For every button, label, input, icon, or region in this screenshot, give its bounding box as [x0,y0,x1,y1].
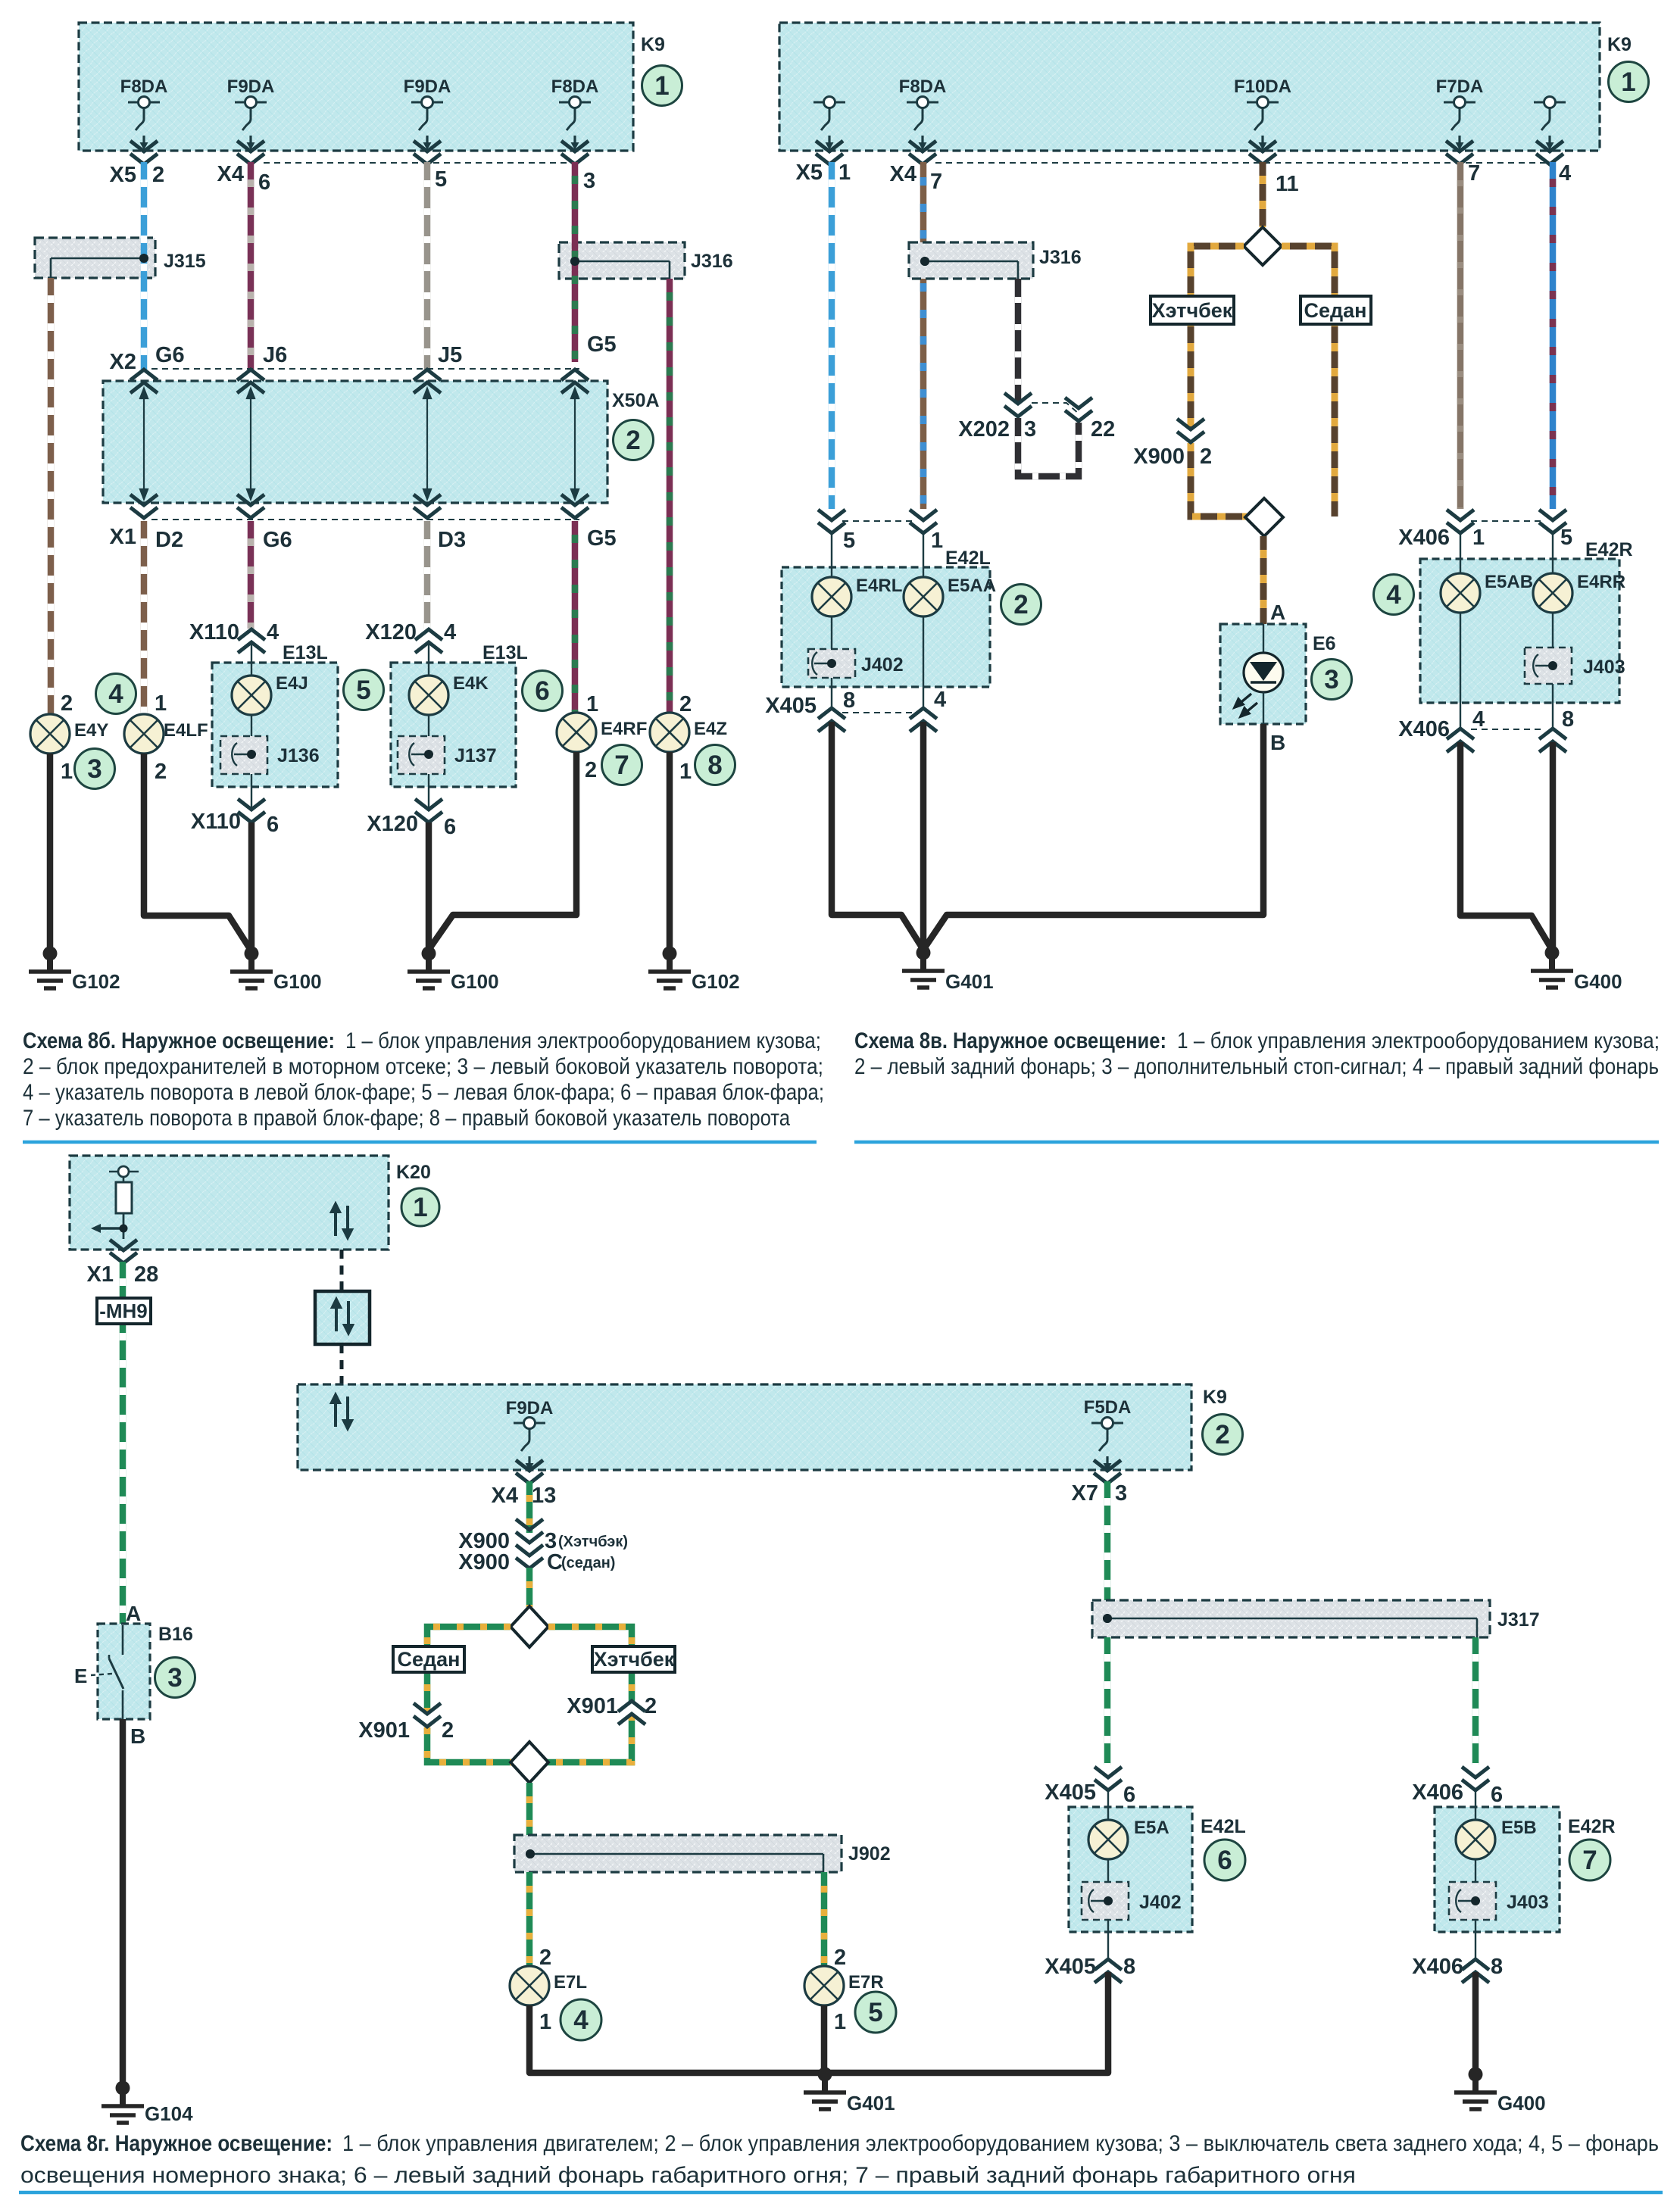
svg-text:X7: X7 [1072,1481,1098,1506]
svg-text:X1: X1 [110,525,136,549]
svg-text:J6: J6 [263,343,287,367]
svg-text:5: 5 [435,167,447,192]
svg-text:3: 3 [583,169,595,193]
svg-text:X4: X4 [217,162,244,186]
svg-text:1: 1 [413,1193,427,1222]
svg-text:7: 7 [1582,1846,1597,1875]
svg-text:8: 8 [1123,1955,1135,1979]
svg-text:6: 6 [258,170,270,195]
svg-text:8: 8 [1562,707,1574,732]
svg-text:X405: X405 [1045,1780,1096,1805]
svg-text:F10DA: F10DA [1234,76,1291,97]
svg-text:Седан: Седан [1304,299,1367,322]
svg-text:F9DA: F9DA [227,76,275,97]
svg-text:J136: J136 [277,745,320,766]
svg-text:1: 1 [1472,526,1485,550]
svg-text:8: 8 [1491,1955,1503,1979]
svg-text:A: A [126,1602,141,1625]
svg-text:X2: X2 [110,350,136,374]
svg-text:G104: G104 [145,2102,193,2125]
svg-text:G400: G400 [1497,2092,1546,2114]
svg-text:5: 5 [356,676,370,705]
svg-text:2: 2 [585,758,597,782]
svg-text:7: 7 [614,751,629,780]
svg-text:1: 1 [931,529,943,553]
svg-text:G5: G5 [587,526,617,551]
svg-text:E5A: E5A [1134,1818,1169,1838]
svg-text:B16: B16 [158,1624,193,1645]
svg-text:1: 1 [539,2010,551,2034]
svg-text:X406: X406 [1398,526,1450,550]
svg-text:3: 3 [1324,665,1338,694]
svg-text:G400: G400 [1574,970,1622,993]
svg-text:D2: D2 [155,528,183,552]
svg-text:J902: J902 [848,1843,891,1865]
svg-text:X4: X4 [492,1484,518,1508]
svg-text:1: 1 [654,71,669,101]
svg-text:X120: X120 [365,620,417,644]
svg-text:E5AB: E5AB [1485,572,1533,592]
svg-text:X1: X1 [87,1262,114,1287]
svg-text:X120: X120 [367,812,418,836]
svg-text:E4RF: E4RF [601,719,647,739]
svg-text:X202: X202 [958,417,1010,442]
svg-text:K9: K9 [641,34,665,55]
svg-text:13: 13 [532,1484,556,1508]
svg-text:1: 1 [838,161,851,185]
svg-text:2: 2 [679,692,692,716]
svg-text:4: 4 [1559,161,1571,186]
svg-text:3: 3 [1115,1481,1127,1506]
svg-text:5: 5 [1560,526,1572,550]
svg-text:E7L: E7L [554,1972,587,1993]
svg-text:6: 6 [535,676,549,706]
svg-text:(седан): (седан) [561,1555,615,1571]
svg-text:G401: G401 [945,970,994,993]
svg-text:Седан: Седан [398,1648,461,1671]
svg-text:-МН9: -МН9 [99,1300,148,1322]
svg-text:E4K: E4K [453,673,489,694]
svg-text:С: С [547,1550,563,1574]
svg-text:J137: J137 [454,745,497,766]
svg-text:E42L: E42L [1201,1816,1246,1837]
svg-text:1: 1 [61,760,73,784]
svg-text:2: 2 [1013,590,1028,619]
svg-text:Хэтчбек: Хэтчбек [594,1648,675,1671]
svg-text:K9: K9 [1203,1387,1227,1408]
svg-text:X110: X110 [191,810,241,834]
svg-text:2: 2 [155,760,167,784]
svg-text:4: 4 [573,2005,589,2035]
svg-text:J316: J316 [1039,247,1082,268]
svg-text:E42R: E42R [1585,539,1633,560]
svg-text:F9DA: F9DA [404,76,451,97]
svg-text:J403: J403 [1507,1892,1549,1913]
svg-text:F8DA: F8DA [899,76,947,97]
svg-text:1: 1 [586,692,598,716]
svg-text:4: 4 [267,620,279,644]
svg-text:11: 11 [1276,172,1299,196]
svg-text:1 – блок управления электрообо: 1 – блок управления электрооборудованием… [345,1028,821,1053]
svg-text:X5: X5 [796,161,823,185]
svg-text:6: 6 [1123,1783,1135,1807]
svg-text:F5DA: F5DA [1084,1397,1132,1418]
svg-text:1: 1 [155,691,167,716]
svg-text:X901: X901 [567,1694,618,1718]
svg-text:Схема 8г. Наружное освещение:: Схема 8г. Наружное освещение: [20,2131,333,2156]
svg-text:E4LF: E4LF [164,720,208,741]
svg-text:B: B [130,1724,145,1748]
svg-text:X50A: X50A [612,390,660,411]
svg-text:Хэтчбек: Хэтчбек [1152,299,1233,322]
svg-text:E7R: E7R [848,1972,884,1993]
svg-text:E42R: E42R [1568,1816,1616,1837]
svg-text:2 – левый задний фонарь; 3 – д: 2 – левый задний фонарь; 3 – дополнитель… [854,1054,1659,1079]
svg-text:4: 4 [444,620,456,644]
svg-text:G6: G6 [263,528,292,552]
svg-text:2: 2 [1200,445,1212,469]
svg-text:6: 6 [444,815,456,839]
svg-text:6: 6 [1217,1846,1232,1875]
svg-text:1: 1 [679,760,692,784]
svg-text:G6: G6 [155,343,185,367]
svg-text:E4RR: E4RR [1577,572,1625,592]
svg-text:K9: K9 [1607,34,1632,55]
svg-text:J402: J402 [861,654,904,676]
svg-text:2: 2 [1215,1420,1229,1450]
svg-text:E5AA: E5AA [948,576,996,596]
svg-text:E42L: E42L [945,548,991,569]
svg-text:G102: G102 [72,970,120,993]
svg-text:E6: E6 [1313,633,1336,654]
svg-text:8: 8 [707,751,722,780]
svg-text:J315: J315 [164,251,206,272]
svg-text:2: 2 [626,426,640,455]
svg-text:D3: D3 [438,528,466,552]
svg-text:G401: G401 [847,2092,895,2114]
svg-text:X406: X406 [1412,1955,1463,1979]
svg-text:A: A [1270,601,1285,624]
svg-text:E: E [74,1665,87,1687]
svg-text:E13L: E13L [283,642,328,663]
svg-text:F7DA: F7DA [1436,76,1484,97]
svg-text:X406: X406 [1412,1780,1463,1805]
svg-text:E4Z: E4Z [694,719,727,739]
svg-text:J402: J402 [1139,1892,1182,1913]
svg-text:2: 2 [61,691,73,716]
svg-text:1: 1 [1621,67,1635,97]
svg-text:5: 5 [868,1998,882,2027]
svg-text:E4J: E4J [276,673,308,694]
svg-text:1: 1 [834,2010,846,2034]
svg-text:F8DA: F8DA [551,76,599,97]
svg-text:X4: X4 [890,162,917,186]
svg-text:7: 7 [930,170,942,194]
svg-text:4: 4 [1472,707,1485,732]
svg-text:E4Y: E4Y [74,720,108,741]
svg-text:8: 8 [843,688,855,713]
svg-text:F8DA: F8DA [120,76,168,97]
svg-text:2: 2 [834,1946,846,1970]
svg-text:G102: G102 [692,970,740,993]
svg-text:Схема 8в. Наружное освещение:: Схема 8в. Наружное освещение: [854,1028,1166,1053]
svg-text:E5B: E5B [1501,1818,1537,1838]
svg-text:4: 4 [934,688,946,712]
svg-text:X406: X406 [1398,717,1450,741]
svg-text:X5: X5 [110,163,136,187]
svg-text:2: 2 [442,1718,454,1743]
svg-text:X110: X110 [189,620,239,644]
svg-text:1 – блок управления электрообо: 1 – блок управления электрооборудованием… [1177,1028,1660,1053]
svg-text:G5: G5 [587,332,617,357]
svg-text:J317: J317 [1497,1609,1540,1631]
svg-text:4: 4 [1386,580,1401,610]
svg-text:5: 5 [843,529,855,553]
svg-text:7: 7 [1468,161,1480,186]
svg-text:G100: G100 [451,970,499,993]
svg-text:K20: K20 [396,1162,431,1183]
svg-text:2: 2 [152,163,164,187]
svg-text:J5: J5 [438,343,462,367]
svg-text:J316: J316 [691,251,733,272]
svg-text:6: 6 [267,813,279,837]
svg-text:4: 4 [108,679,123,709]
svg-text:3: 3 [87,754,101,784]
svg-text:1 – блок управления двигателем: 1 – блок управления двигателем; 2 – блок… [342,2131,1659,2156]
svg-text:X900: X900 [1133,445,1185,469]
svg-text:6: 6 [1491,1783,1503,1807]
svg-text:28: 28 [134,1262,158,1287]
svg-text:Схема 8б. Наружное освещение:: Схема 8б. Наружное освещение: [23,1028,335,1053]
svg-text:X405: X405 [1045,1955,1096,1979]
svg-text:X405: X405 [765,694,817,718]
svg-text:G100: G100 [273,970,322,993]
svg-text:B: B [1270,731,1285,754]
svg-text:2: 2 [645,1694,657,1718]
svg-text:7 – указатель поворота в право: 7 – указатель поворота в правой блок-фар… [23,1106,790,1131]
svg-text:4 – указатель поворота в левой: 4 – указатель поворота в левой блок-фаре… [23,1080,824,1105]
svg-text:3: 3 [167,1663,182,1693]
svg-text:освещения номерного знака; 6 –: освещения номерного знака; 6 – левый зад… [20,2163,1356,2188]
svg-text:E13L: E13L [482,642,528,663]
svg-text:3: 3 [1024,417,1036,442]
svg-text:2: 2 [539,1946,551,1970]
svg-text:(Хэтчбэк): (Хэтчбэк) [558,1534,628,1550]
svg-text:X901: X901 [358,1718,410,1743]
svg-text:X900: X900 [458,1550,510,1574]
svg-text:22: 22 [1091,417,1115,442]
svg-text:2 – блок предохранителей в мот: 2 – блок предохранителей в моторном отсе… [23,1054,823,1079]
svg-text:F9DA: F9DA [506,1398,554,1418]
svg-text:E4RL: E4RL [856,576,902,596]
svg-text:J403: J403 [1583,657,1625,678]
